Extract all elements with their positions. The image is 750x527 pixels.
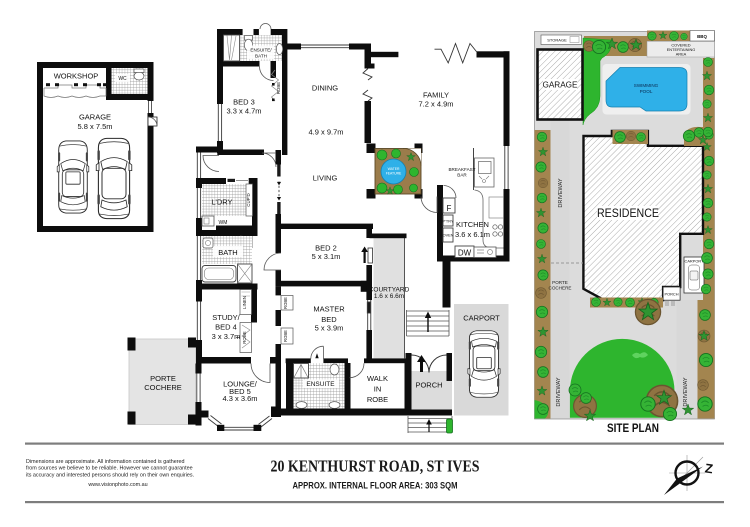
svg-text:7.2 x 4.9m: 7.2 x 4.9m <box>418 100 453 109</box>
svg-text:APPROX. INTERNAL FLOOR AREA: 3: APPROX. INTERNAL FLOOR AREA: 303 SQM <box>293 481 458 491</box>
svg-text:DW: DW <box>458 249 472 258</box>
svg-text:4.3 x 3.6m: 4.3 x 3.6m <box>222 394 257 403</box>
svg-text:5 x 3.9m: 5 x 3.9m <box>315 324 344 333</box>
svg-text:3.3 x 4.7m: 3.3 x 4.7m <box>226 107 261 116</box>
svg-text:3.6 x 6.1m: 3.6 x 6.1m <box>455 230 490 239</box>
svg-text:DINING: DINING <box>312 84 338 93</box>
svg-text:ROBE: ROBE <box>242 331 247 344</box>
svg-text:ROBE: ROBE <box>283 297 288 309</box>
svg-text:STORAGE: STORAGE <box>547 38 567 43</box>
svg-text:BED 3: BED 3 <box>233 98 255 107</box>
svg-text:L’DRY: L’DRY <box>211 198 232 207</box>
svg-text:DRIVEWAY: DRIVEWAY <box>556 377 562 406</box>
svg-text:BATH: BATH <box>218 248 237 257</box>
svg-text:GARAGE: GARAGE <box>79 113 111 122</box>
svg-text:PORCH: PORCH <box>664 292 678 297</box>
svg-text:MASTER: MASTER <box>313 305 345 314</box>
svg-text:OVEN: OVEN <box>443 234 454 238</box>
svg-text:FAMILY: FAMILY <box>423 91 449 100</box>
svg-text:its accuracy and interested pe: its accuracy and interested persons shou… <box>26 472 194 478</box>
svg-text:BATH: BATH <box>255 54 267 59</box>
svg-text:IN: IN <box>374 385 382 394</box>
svg-text:WATER: WATER <box>388 167 400 171</box>
svg-text:PORTE: PORTE <box>552 280 568 285</box>
svg-text:3 x 3.7m: 3 x 3.7m <box>212 332 241 341</box>
svg-text:KITCHEN: KITCHEN <box>456 220 489 229</box>
svg-text:Dimensions are approximate.: Dimensions are approximate. All informat… <box>26 459 185 465</box>
svg-text:FEATURE: FEATURE <box>386 172 402 176</box>
svg-text:ROBE: ROBE <box>367 395 388 404</box>
svg-text:www.visionphoto.com.au: www.visionphoto.com.au <box>87 482 147 488</box>
svg-text:P’TRY: P’TRY <box>443 220 454 224</box>
svg-text:5 x 3.1m: 5 x 3.1m <box>312 252 341 261</box>
svg-text:WALK: WALK <box>367 374 388 383</box>
svg-text:CARPORT: CARPORT <box>463 314 500 323</box>
svg-text:20 KENTHURST ROAD, ST IVES: 20 KENTHURST ROAD, ST IVES <box>271 457 480 476</box>
svg-text:STUDY/: STUDY/ <box>212 313 240 322</box>
svg-text:COCHERE: COCHERE <box>549 286 572 291</box>
svg-text:WM: WM <box>219 220 228 226</box>
svg-text:RESIDENCE: RESIDENCE <box>597 208 659 220</box>
svg-text:CUP’D: CUP’D <box>246 193 251 206</box>
svg-text:PORCH: PORCH <box>415 381 442 390</box>
svg-text:F: F <box>447 204 452 213</box>
svg-text:POOL: POOL <box>640 89 653 94</box>
svg-text:LIVING: LIVING <box>313 174 338 183</box>
svg-text:ROBE: ROBE <box>283 330 288 342</box>
svg-text:DRIVEWAY: DRIVEWAY <box>558 178 564 207</box>
svg-text:WC: WC <box>118 76 127 82</box>
svg-text:AREA: AREA <box>676 52 687 57</box>
svg-text:GARAGE: GARAGE <box>542 81 578 90</box>
svg-text:LINEN: LINEN <box>242 296 247 309</box>
svg-text:ROBE: ROBE <box>276 82 281 95</box>
svg-text:ENSUITE: ENSUITE <box>306 381 335 388</box>
svg-text:DRIVEWAY: DRIVEWAY <box>683 377 689 406</box>
svg-text:BBQ: BBQ <box>697 34 707 39</box>
svg-text:CARPORT: CARPORT <box>685 259 705 264</box>
svg-text:COCHERE: COCHERE <box>144 383 182 392</box>
svg-text:ENSUITE/: ENSUITE/ <box>250 48 272 53</box>
svg-text:from sources we believe to be: from sources we believe to be reliable. … <box>26 466 193 472</box>
svg-text:WORKSHOP: WORKSHOP <box>54 72 99 81</box>
svg-text:5.8 x 7.5m: 5.8 x 7.5m <box>77 122 112 131</box>
svg-text:1.6 x 6.6m: 1.6 x 6.6m <box>374 293 404 300</box>
svg-text:SWIMMING: SWIMMING <box>634 83 659 88</box>
svg-text:4.9 x 9.7m: 4.9 x 9.7m <box>308 128 343 137</box>
svg-text:BAR: BAR <box>457 173 467 178</box>
svg-text:BED 4: BED 4 <box>215 323 237 332</box>
svg-text:BREAKFAST: BREAKFAST <box>448 167 475 172</box>
svg-text:SITE PLAN: SITE PLAN <box>607 423 659 435</box>
svg-text:PORTE: PORTE <box>150 374 176 383</box>
